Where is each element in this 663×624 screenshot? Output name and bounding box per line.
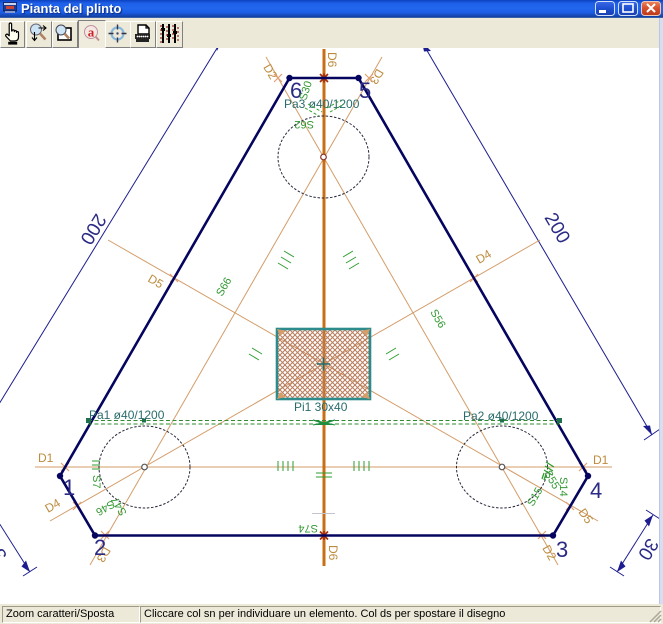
svg-text:Pi1 30x40: Pi1 30x40: [294, 400, 348, 414]
svg-text:D1: D1: [38, 451, 54, 465]
svg-text:3: 3: [556, 537, 568, 562]
svg-text:D1: D1: [593, 453, 609, 467]
svg-text:a: a: [88, 25, 95, 40]
svg-text:S74: S74: [298, 522, 318, 534]
svg-text:2: 2: [94, 535, 106, 560]
svg-text:1: 1: [63, 475, 75, 500]
svg-text:Pa3 ø40/1200: Pa3 ø40/1200: [284, 97, 360, 111]
svg-text:D6: D6: [325, 52, 339, 68]
svg-text:Pa2 ø40/1200: Pa2 ø40/1200: [463, 409, 539, 423]
svg-text:D6: D6: [326, 545, 340, 561]
svg-text:S62: S62: [294, 118, 314, 130]
svg-text:4: 4: [590, 478, 602, 503]
svg-text:Pa1 ø40/1200: Pa1 ø40/1200: [89, 408, 165, 422]
svg-text:S14: S14: [557, 477, 569, 497]
svg-text:S7: S7: [90, 475, 102, 488]
svg-text:5: 5: [359, 78, 371, 103]
